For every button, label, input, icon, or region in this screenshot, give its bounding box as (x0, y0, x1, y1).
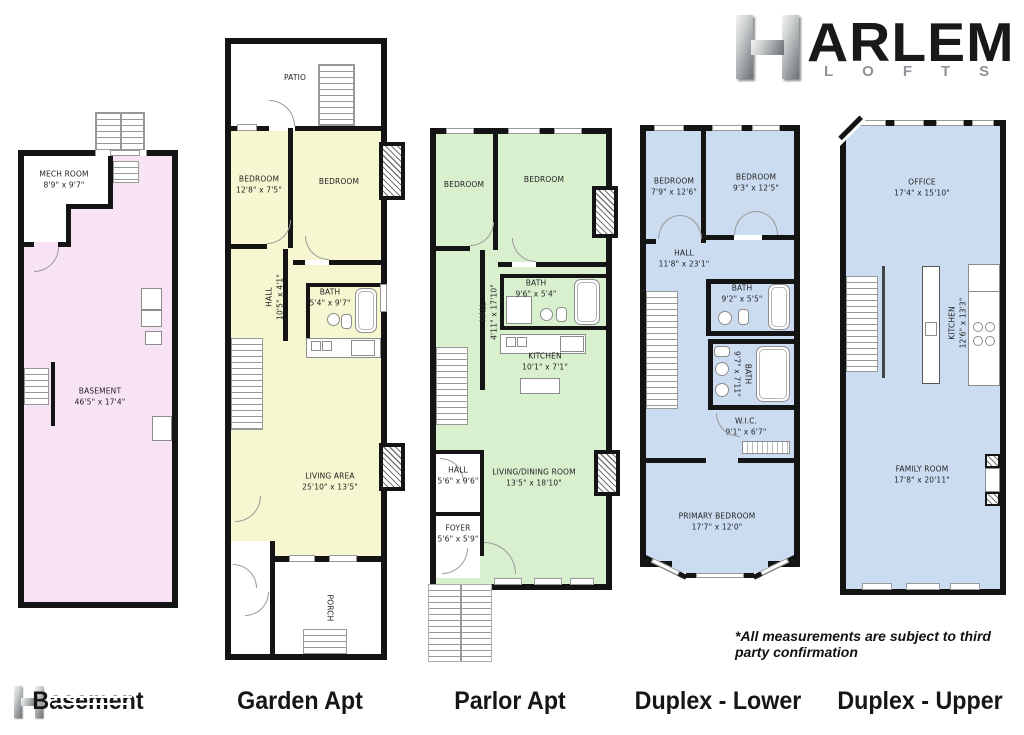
window (972, 120, 994, 126)
wall (500, 274, 504, 330)
plan-garden-apt: PATIO BEDROOM12'8" x 7'5" BEDROOM HALL10… (225, 38, 387, 660)
room-label-kitchen: KITCHEN10'1" x 7'1" (522, 352, 568, 373)
shaft-hatched (379, 142, 405, 200)
plan-title-duplex-upper: Duplex - Upper (837, 687, 1002, 716)
door-arc (484, 542, 516, 574)
wall (701, 131, 706, 243)
room-label-bedroom1: BEDROOM12'8" x 7'5" (236, 175, 282, 196)
room-label-kitchen: KITCHEN12'6" x 13'3" (948, 298, 969, 349)
wall (436, 246, 470, 251)
room-label-living: LIVING AREA25'10" x 13'5" (302, 472, 358, 493)
stove (351, 340, 375, 356)
room-label-bedroom2: BEDROOM (319, 177, 359, 188)
wall (646, 458, 706, 463)
logo-h-right-bar (782, 15, 799, 79)
stair-divider (120, 114, 122, 154)
stove (560, 336, 584, 352)
patio-stairs (318, 64, 355, 126)
sink (540, 308, 553, 321)
room-label-bath2: BATH9'7" x 7'11" (732, 351, 753, 397)
burner (985, 322, 995, 332)
wall (58, 242, 71, 247)
door-arc (512, 238, 536, 262)
toilet (556, 307, 567, 322)
wall (708, 339, 794, 344)
window (654, 125, 684, 131)
window (570, 578, 594, 585)
water-heater (141, 310, 162, 327)
room-label-family: FAMILY ROOM17'8" x 20'11" (894, 465, 950, 486)
door-opening (734, 235, 762, 240)
wall (480, 450, 484, 516)
window (237, 124, 257, 131)
bathtub (756, 346, 790, 402)
wall (436, 450, 484, 454)
chimney (985, 468, 1000, 492)
wall (708, 339, 713, 409)
kitchen-sink (322, 341, 332, 351)
room-label-bath1: BATH9'2" x 5'5" (722, 284, 763, 305)
wall (231, 244, 267, 249)
wall-cabinet (152, 416, 172, 441)
floorplan-sheet: ARLEM LOFTS *All measurements are subjec… (0, 0, 1024, 735)
harlem-lofts-logo: ARLEM LOFTS (730, 12, 1015, 84)
staircase (646, 291, 678, 409)
stair-rail (882, 266, 885, 378)
window (446, 128, 474, 134)
utility-sink (145, 331, 162, 345)
window (936, 120, 964, 126)
room-label-hall-upper: HALL4'11" x 17'10" (479, 284, 500, 340)
window (329, 555, 357, 562)
plan-basement: MECH ROOM8'9" x 9'7" BASEMENT46'5" x 17'… (18, 150, 178, 608)
window (534, 578, 562, 585)
door-arc (470, 222, 494, 246)
staircase (231, 338, 263, 430)
wall (24, 242, 34, 247)
disclaimer-text: *All measurements are subject to third p… (735, 628, 1024, 660)
porch-steps (303, 629, 347, 654)
room-label-hall-lower: HALL5'6" x 9'6" (438, 466, 479, 487)
window (554, 128, 582, 134)
room-label-bedroom2: BEDROOM (524, 175, 564, 186)
stair-divider (460, 585, 462, 661)
door-arc (716, 413, 740, 437)
plan-parlor-apt: BEDROOM BEDROOM BATH9'6" x 5'4" HALL4'11… (430, 128, 612, 590)
room-label-living: LIVING/DINING ROOM13'5" x 18'10" (492, 468, 576, 489)
wall (500, 274, 606, 278)
boiler-unit (141, 288, 162, 310)
window (712, 125, 742, 131)
wall (646, 239, 656, 244)
burner (973, 322, 983, 332)
logo-h-icon (736, 15, 800, 79)
door-opening (305, 260, 329, 265)
plan-title-garden: Garden Apt (237, 687, 363, 716)
window (508, 128, 540, 134)
room-label-hall: HALL11'8" x 23'1" (659, 249, 710, 270)
room-label-porch: PORCH (324, 595, 335, 622)
room-label-bath: BATH5'4" x 9'7" (310, 288, 351, 309)
window (906, 583, 940, 590)
chimney-hatch (985, 454, 1000, 468)
closet-rack (742, 441, 790, 454)
stoop-stairs (428, 584, 492, 662)
basement-stairs (24, 368, 49, 405)
window (950, 583, 980, 590)
room-label-office: OFFICE17'4" x 15'10" (894, 178, 950, 199)
kitchen-sink (506, 337, 516, 347)
window (380, 284, 387, 312)
window (494, 578, 522, 585)
door-arc (235, 496, 261, 522)
door-arc (680, 215, 702, 239)
window (894, 120, 924, 126)
bathtub (768, 284, 790, 330)
room-label-primary: PRIMARY BEDROOM17'7" x 12'0" (679, 512, 756, 533)
kitchen-sink (517, 337, 527, 347)
kitchen-island (520, 378, 560, 394)
plan-duplex-lower: BEDROOM7'9" x 12'6" BEDROOM9'3" x 12'5" … (640, 125, 800, 567)
plan-title-parlor: Parlor Apt (454, 687, 566, 716)
room-label-bedroom1: BEDROOM7'9" x 12'6" (651, 177, 697, 198)
plan-title-duplex-lower: Duplex - Lower (635, 687, 802, 716)
room-label-patio: PATIO (284, 73, 306, 84)
wall (493, 134, 498, 250)
sink (715, 383, 729, 397)
room-label-basement: BASEMENT46'5" x 17'4" (75, 387, 126, 408)
toilet (738, 309, 749, 325)
shaft-hatched (594, 450, 620, 496)
title-glitch-line (52, 703, 130, 705)
burner (985, 336, 995, 346)
wall (66, 204, 113, 209)
room-label-foyer: FOYER5'6" x 5'9" (438, 524, 479, 545)
shower (506, 296, 532, 324)
sink (718, 311, 732, 325)
sink (327, 313, 340, 326)
bay-floor (672, 553, 768, 573)
burner (973, 336, 983, 346)
room-label-mech: MECH ROOM8'9" x 9'7" (39, 170, 88, 191)
toilet (714, 346, 730, 357)
wall (51, 362, 55, 426)
toilet (341, 314, 352, 329)
wall (500, 326, 606, 330)
wall (306, 283, 381, 287)
room-label-bath: BATH9'6" x 5'4" (516, 279, 557, 300)
window (289, 555, 315, 562)
title-glitch-line (48, 696, 132, 698)
shaft-hatched (592, 186, 618, 238)
wall (706, 331, 794, 336)
door-arc (305, 236, 329, 260)
bathtub (355, 288, 377, 333)
staircase (436, 347, 468, 425)
logo-h-crossbar (751, 40, 784, 55)
staircase (846, 276, 878, 372)
bathtub (574, 279, 600, 325)
patio-floor (231, 44, 381, 126)
shaft-hatched (379, 443, 405, 491)
door-arc (34, 247, 59, 272)
room-label-hall: HALL10'5" x 4'1" (265, 274, 286, 320)
sink (715, 362, 729, 376)
door-opening (512, 262, 536, 267)
door-arc (658, 215, 680, 239)
wall (66, 204, 71, 242)
kitchen-sink (311, 341, 321, 351)
window (862, 583, 892, 590)
plan-title-basement: Basement (32, 687, 143, 716)
island-sink (925, 322, 937, 336)
bay-window (696, 573, 744, 578)
plan-duplex-upper: OFFICE17'4" x 15'10" KITCHEN12'6" x 13'3… (840, 120, 1006, 595)
refrigerator (968, 264, 1000, 292)
wall (738, 458, 794, 463)
window (110, 150, 140, 156)
wall (708, 405, 794, 410)
wall (436, 512, 484, 516)
room-label-bedroom2: BEDROOM9'3" x 12'5" (733, 173, 779, 194)
room-label-bedroom1: BEDROOM (444, 180, 484, 191)
wall (706, 279, 711, 336)
entry-stairs (113, 161, 139, 183)
logo-subtitle: LOFTS (824, 63, 1018, 80)
chimney-hatch (985, 492, 1000, 506)
door-arc (734, 211, 756, 235)
window (752, 125, 780, 131)
door-arc (756, 211, 778, 235)
